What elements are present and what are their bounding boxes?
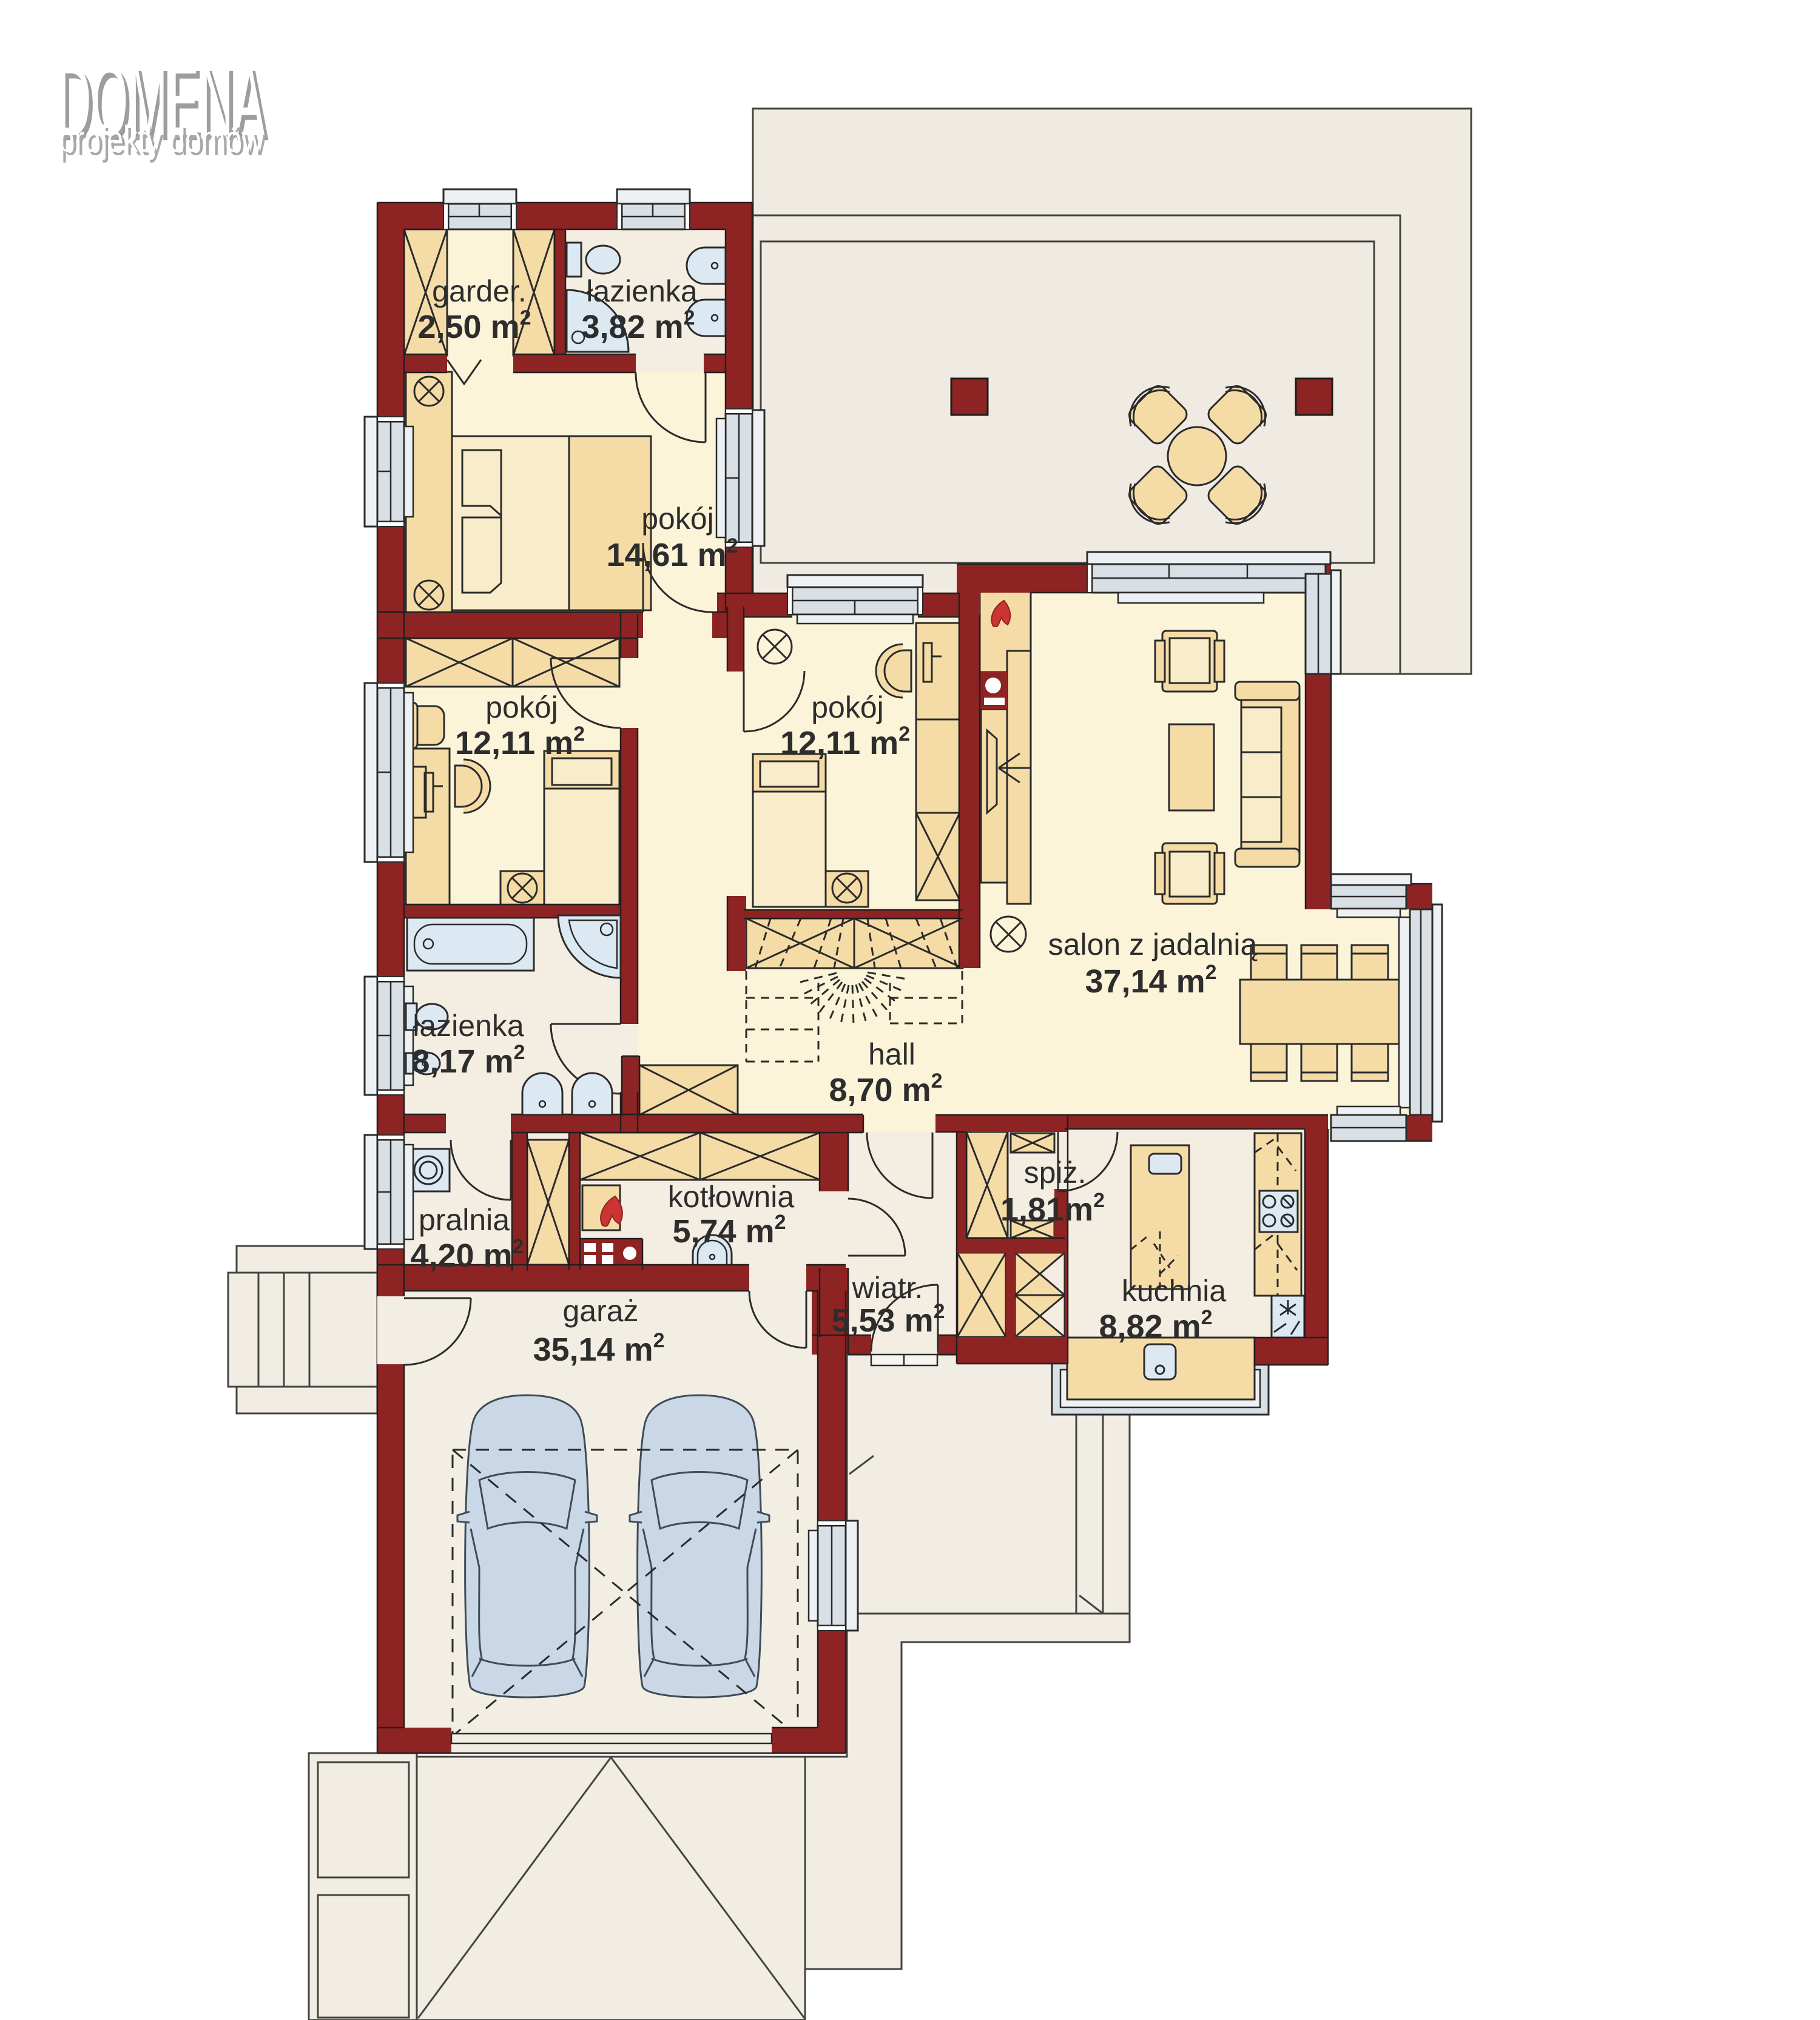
svg-text:kuchnia: kuchnia bbox=[1122, 1274, 1227, 1308]
svg-text:pralnia: pralnia bbox=[419, 1203, 510, 1237]
svg-text:pokój: pokój bbox=[811, 690, 884, 724]
svg-text:2,50 m2: 2,50 m2 bbox=[417, 306, 531, 345]
svg-text:3,82 m2: 3,82 m2 bbox=[581, 306, 695, 345]
svg-text:8,82 m2: 8,82 m2 bbox=[1099, 1306, 1212, 1345]
svg-text:projekty domów: projekty domów bbox=[58, 118, 263, 160]
svg-text:łazienka: łazienka bbox=[413, 1009, 524, 1043]
svg-text:1,81m2: 1,81m2 bbox=[1000, 1189, 1105, 1228]
svg-text:wiatr.: wiatr. bbox=[852, 1271, 923, 1305]
svg-text:łazienka: łazienka bbox=[586, 274, 698, 308]
svg-text:8,70 m2: 8,70 m2 bbox=[829, 1069, 942, 1108]
svg-text:14,61 m2: 14,61 m2 bbox=[606, 534, 738, 573]
svg-text:pokój: pokój bbox=[485, 690, 558, 724]
svg-text:kotłownia: kotłownia bbox=[668, 1180, 795, 1214]
svg-text:spiż.: spiż. bbox=[1024, 1156, 1087, 1190]
svg-text:12,11 m2: 12,11 m2 bbox=[780, 722, 910, 761]
svg-text:5,74 m2: 5,74 m2 bbox=[672, 1211, 786, 1250]
svg-text:pokój: pokój bbox=[641, 502, 714, 536]
svg-text:4,20 m2: 4,20 m2 bbox=[410, 1235, 524, 1274]
svg-text:35,14 m2: 35,14 m2 bbox=[533, 1329, 664, 1368]
svg-text:8,17 m2: 8,17 m2 bbox=[411, 1041, 525, 1080]
svg-text:garaż: garaż bbox=[562, 1294, 638, 1328]
svg-text:5,53 m2: 5,53 m2 bbox=[831, 1300, 945, 1339]
svg-text:salon z jadalnią: salon z jadalnią bbox=[1048, 928, 1258, 961]
svg-text:garder.: garder. bbox=[432, 274, 527, 308]
svg-text:37,14 m2: 37,14 m2 bbox=[1085, 961, 1216, 1000]
svg-text:12,11 m2: 12,11 m2 bbox=[455, 722, 585, 761]
svg-text:hall: hall bbox=[868, 1037, 915, 1071]
